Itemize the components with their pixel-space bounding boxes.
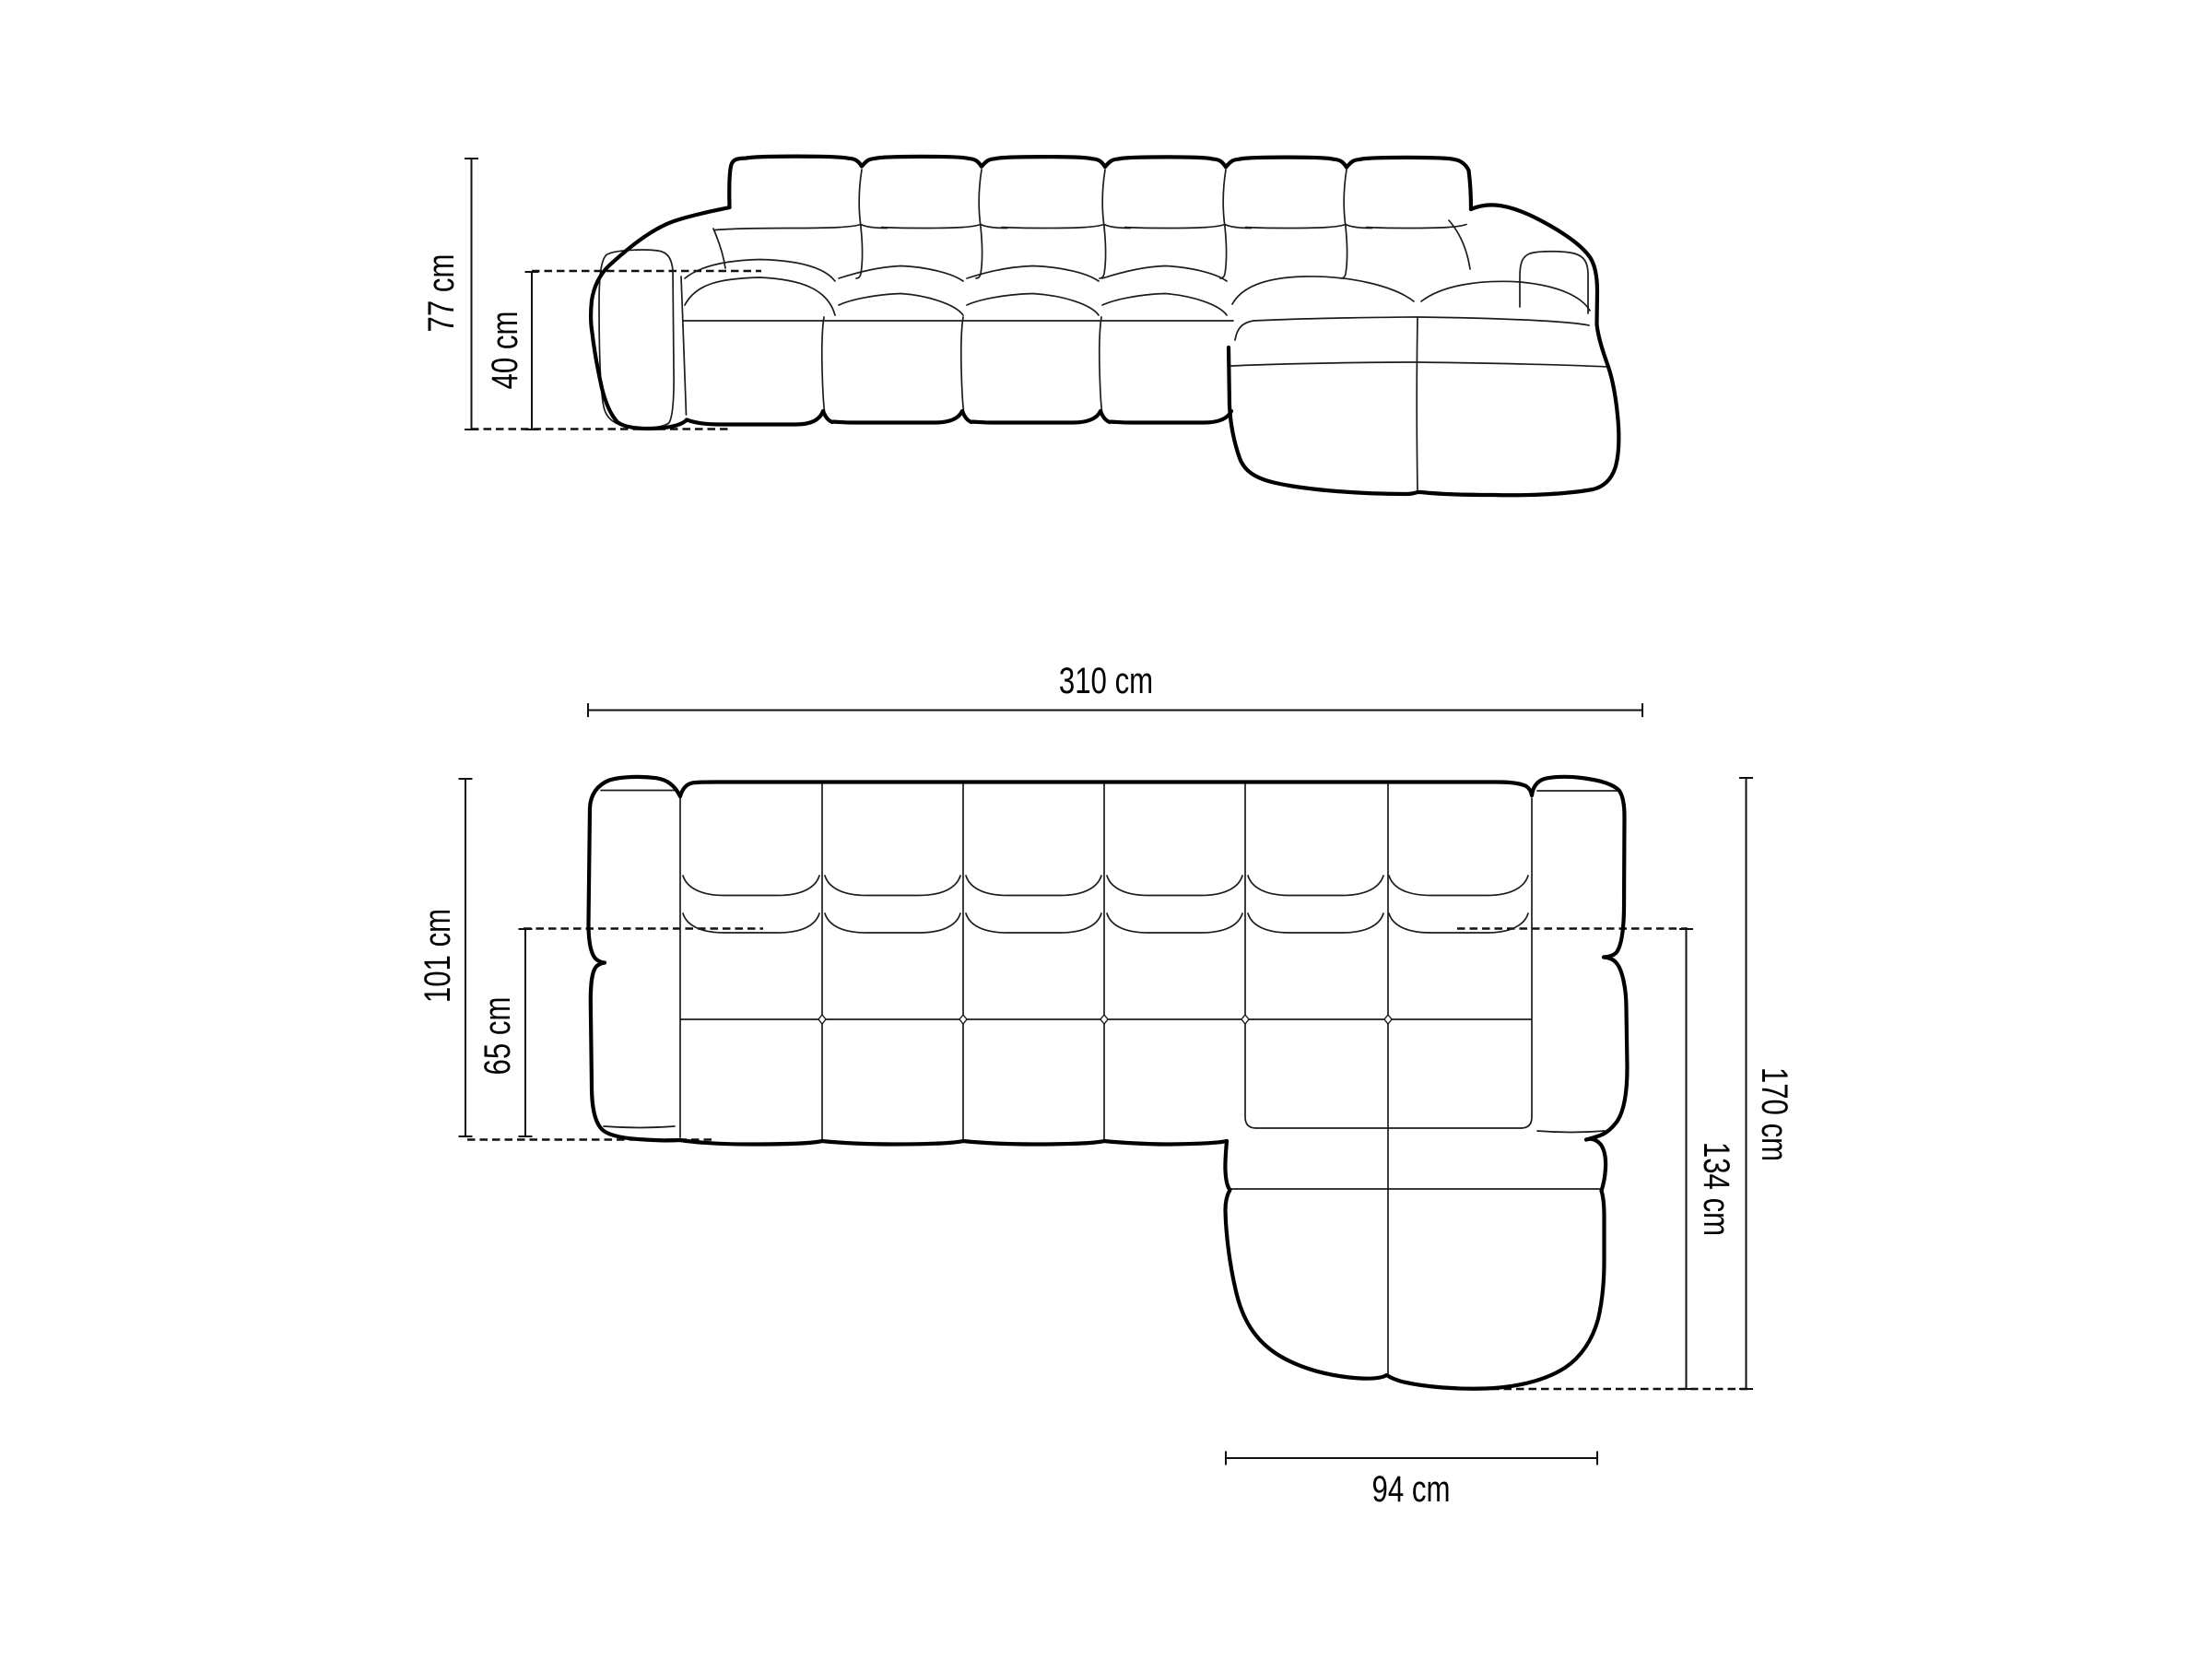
svg-text:65 cm: 65 cm (477, 997, 518, 1076)
svg-text:94 cm: 94 cm (1372, 1468, 1451, 1510)
svg-text:40 cm: 40 cm (484, 312, 525, 390)
svg-text:101 cm: 101 cm (417, 909, 458, 1003)
svg-text:170 cm: 170 cm (1754, 1067, 1795, 1161)
svg-text:77 cm: 77 cm (420, 254, 462, 333)
svg-text:310 cm: 310 cm (1059, 660, 1153, 701)
svg-text:134 cm: 134 cm (1696, 1142, 1737, 1236)
